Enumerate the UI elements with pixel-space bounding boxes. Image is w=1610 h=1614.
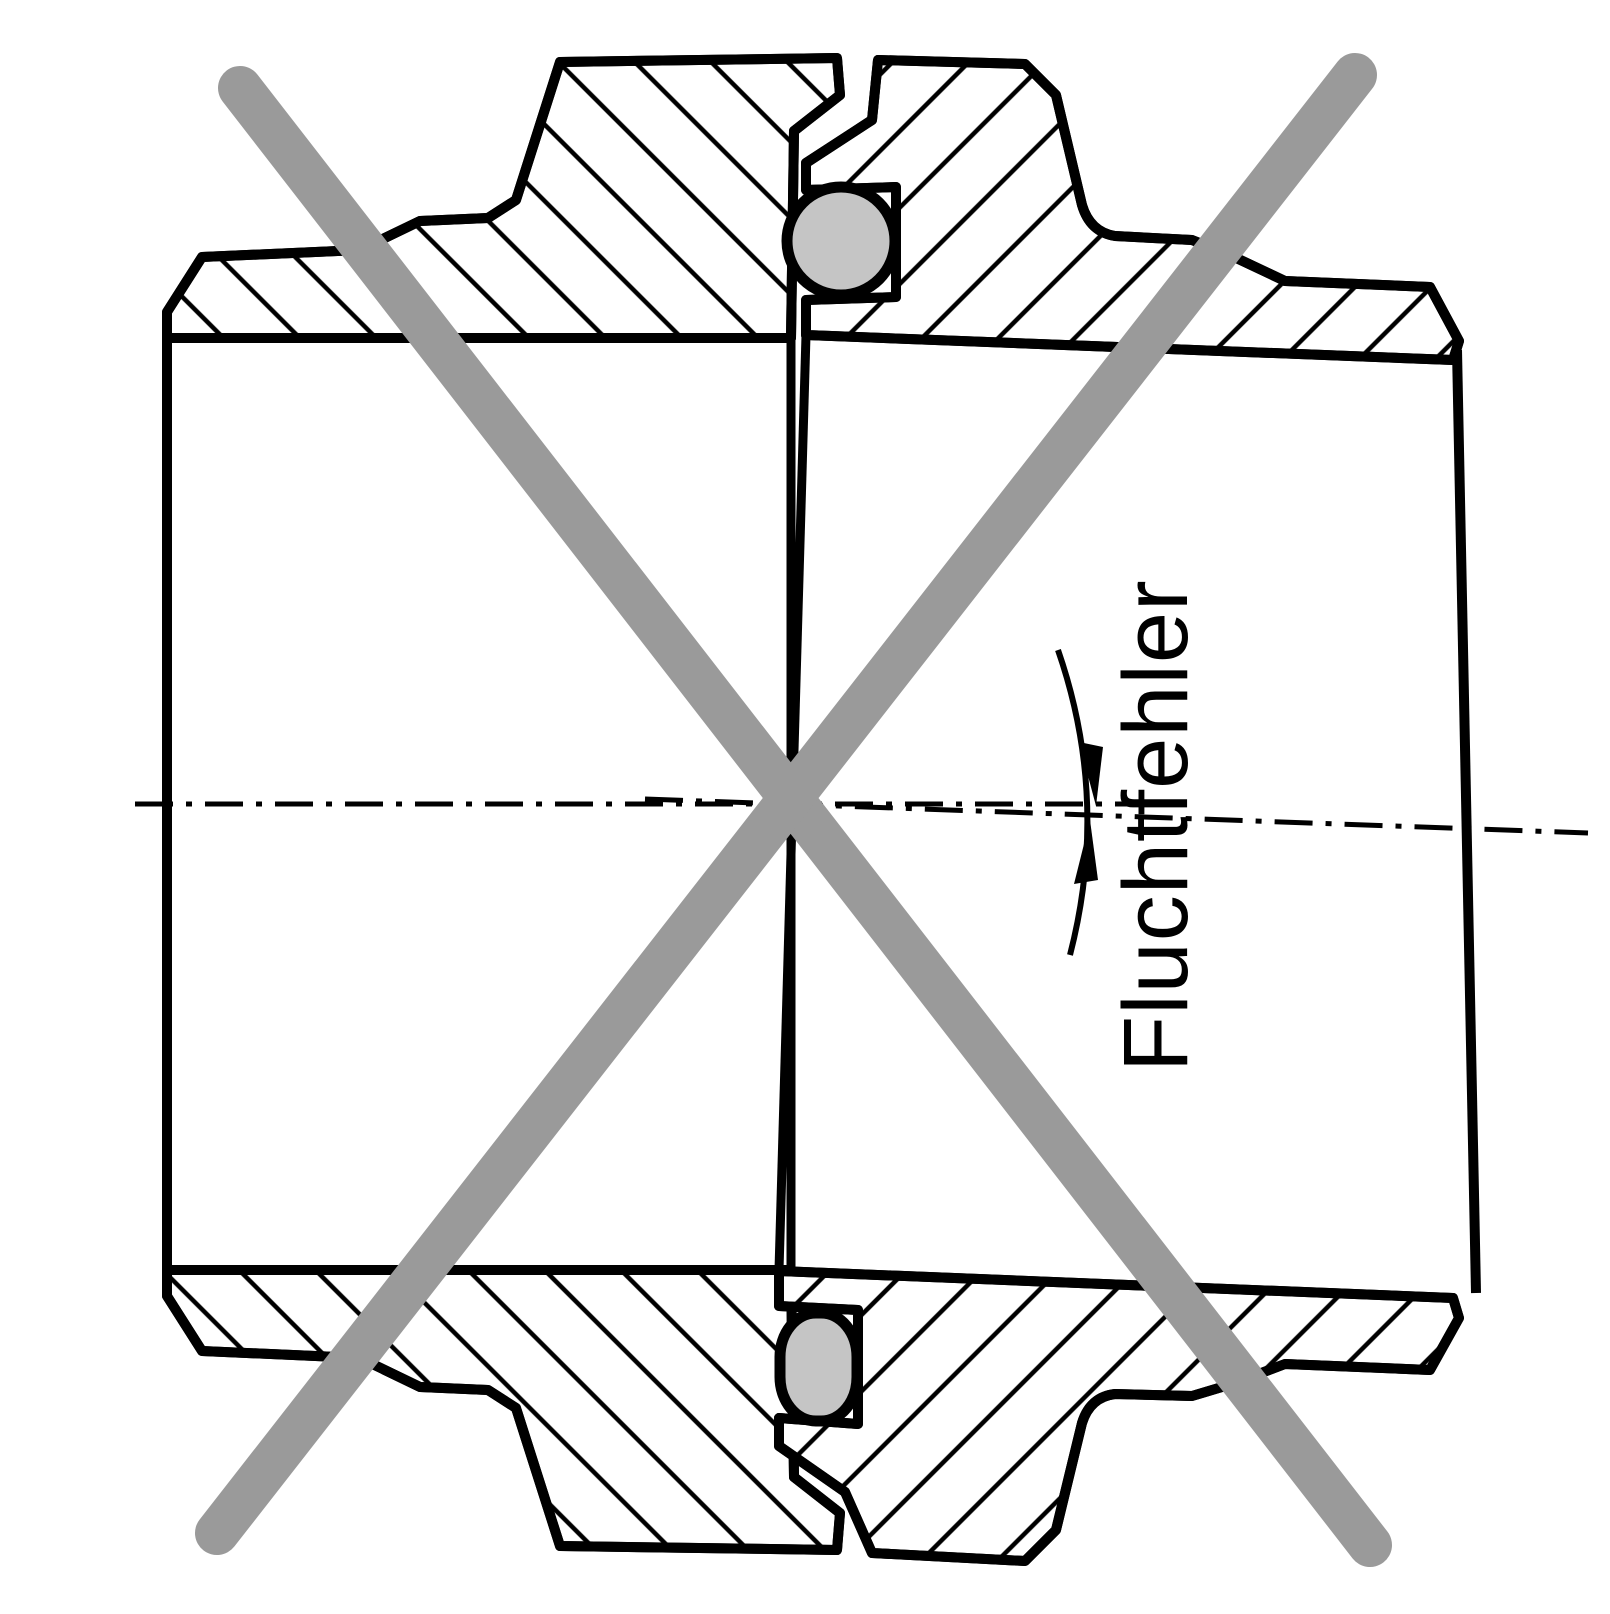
right-fitting-upper-section: [806, 60, 1459, 360]
left-fitting-lower-section: [167, 1270, 840, 1550]
o-ring-seal-top: [787, 187, 895, 295]
right-pipe-end-edge: [1457, 350, 1476, 1293]
o-ring-seal-bottom-compressed: [780, 1313, 857, 1421]
diagram-page: Fluchtfehler: [0, 0, 1610, 1614]
misalignment-label: Fluchtfehler: [1105, 579, 1207, 1072]
technical-drawing: Fluchtfehler: [0, 0, 1610, 1614]
